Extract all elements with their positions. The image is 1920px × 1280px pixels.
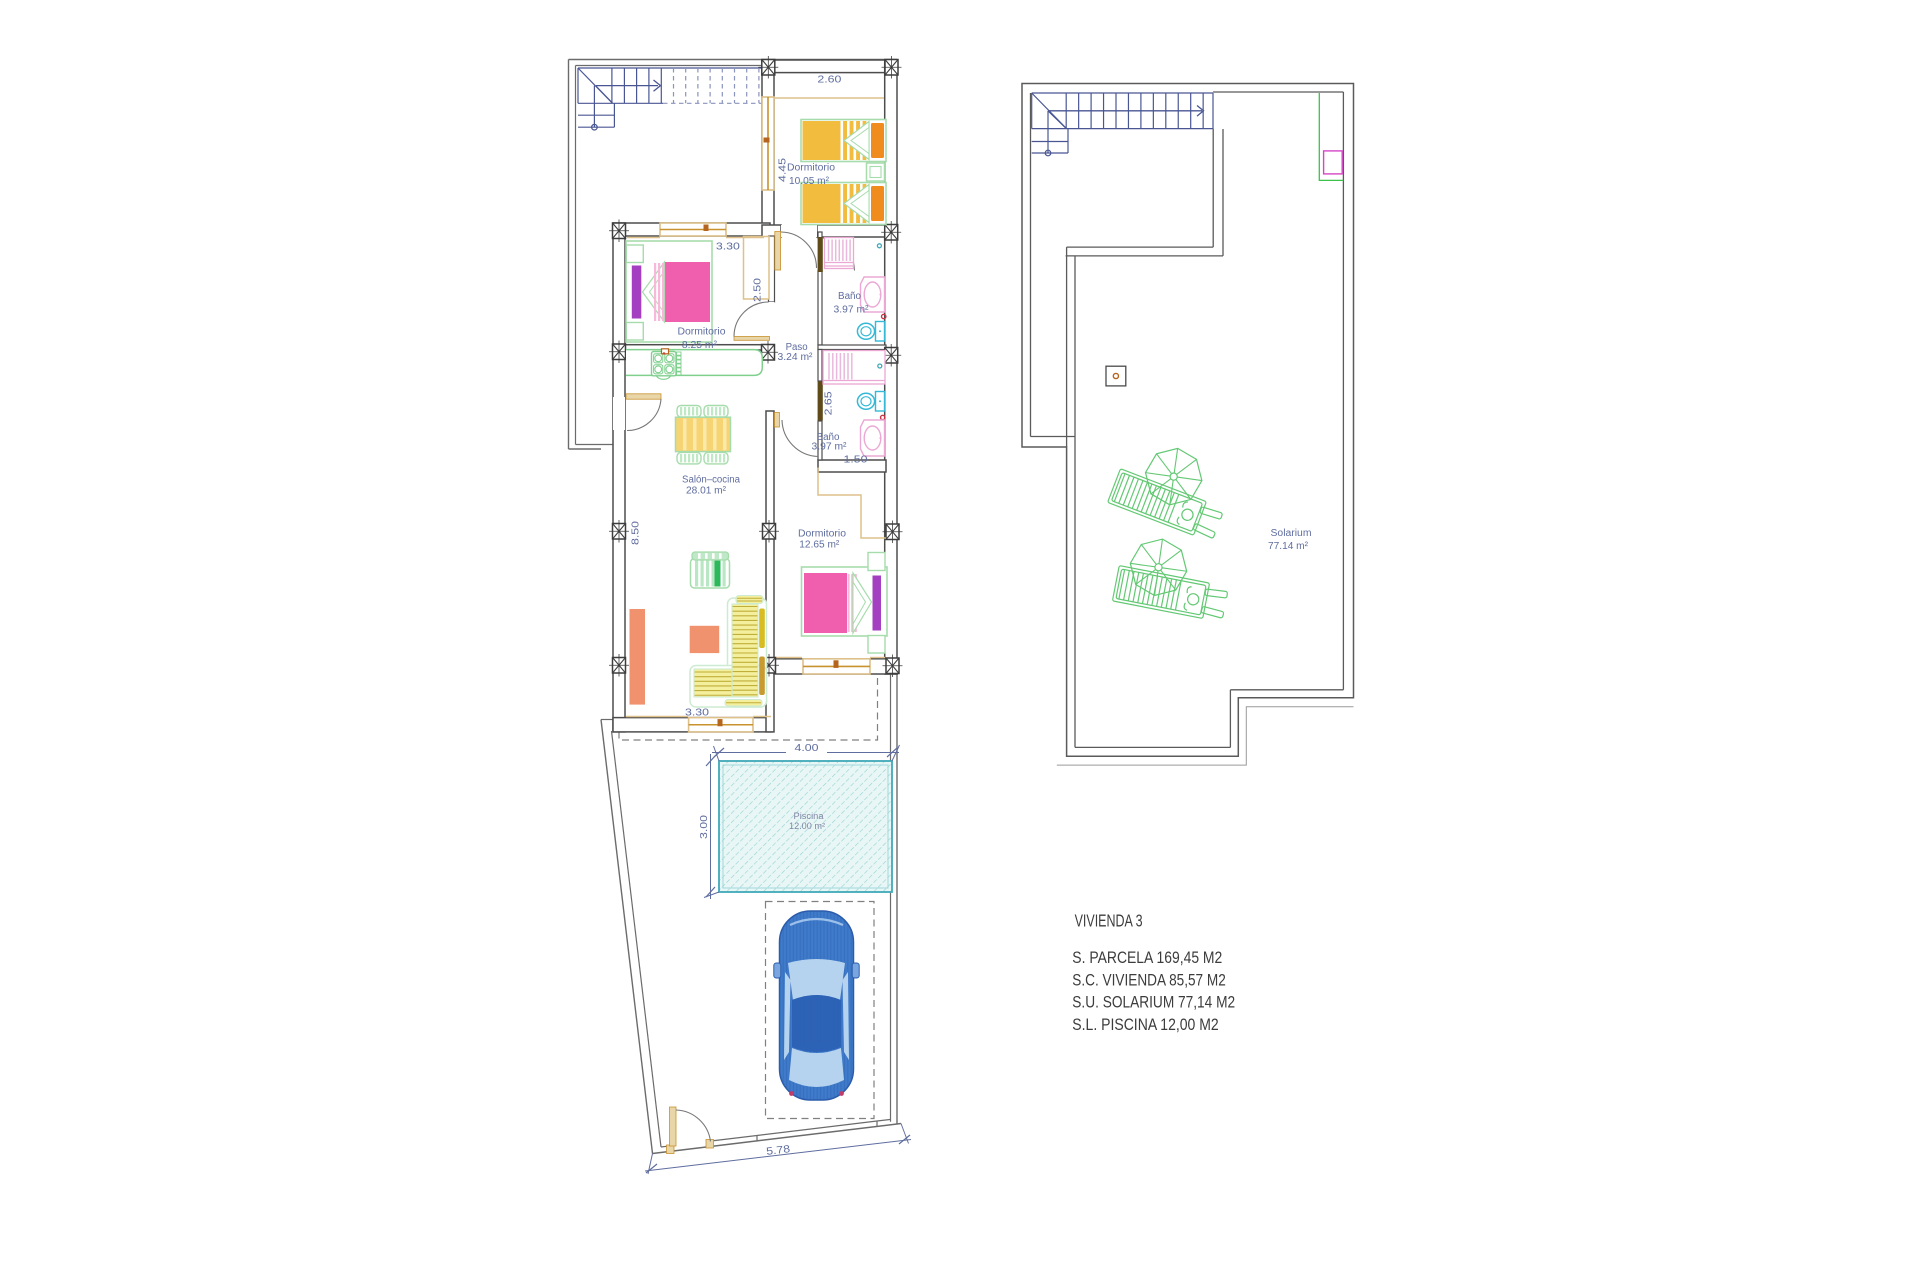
- svg-text:77.14 m²: 77.14 m²: [1268, 541, 1309, 552]
- svg-text:8.25 m²: 8.25 m²: [682, 340, 718, 351]
- svg-text:Salón–cocina: Salón–cocina: [682, 475, 740, 486]
- svg-text:1.50: 1.50: [844, 453, 868, 465]
- svg-text:S.L. PISCINA 12,00 M2: S.L. PISCINA 12,00 M2: [1072, 1015, 1218, 1034]
- svg-text:3.00: 3.00: [698, 815, 710, 839]
- svg-text:2.50: 2.50: [752, 278, 764, 302]
- svg-text:8.50: 8.50: [630, 521, 642, 545]
- svg-text:Solarium: Solarium: [1271, 528, 1312, 539]
- svg-text:3.97 m²: 3.97 m²: [834, 305, 870, 316]
- svg-text:3.24 m²: 3.24 m²: [778, 352, 814, 363]
- svg-text:S.U. SOLARIUM 77,14 M2: S.U. SOLARIUM 77,14 M2: [1072, 993, 1235, 1012]
- svg-text:Dormitorio: Dormitorio: [678, 327, 726, 338]
- svg-text:4.00: 4.00: [795, 742, 819, 754]
- svg-text:S.C. VIVIENDA 85,57 M2: S.C. VIVIENDA 85,57 M2: [1072, 970, 1226, 989]
- svg-text:Dormitorio: Dormitorio: [798, 529, 846, 540]
- svg-text:Piscina: Piscina: [794, 811, 824, 821]
- svg-text:28.01 m²: 28.01 m²: [686, 486, 727, 497]
- svg-text:S. PARCELA 169,45 M2: S. PARCELA 169,45 M2: [1072, 948, 1222, 967]
- svg-text:3.30: 3.30: [716, 241, 740, 253]
- svg-text:Baño: Baño: [838, 291, 861, 302]
- svg-text:Dormitorio: Dormitorio: [787, 163, 835, 174]
- svg-text:10.05 m²: 10.05 m²: [789, 176, 830, 187]
- svg-text:VIVIENDA 3: VIVIENDA 3: [1075, 911, 1143, 931]
- svg-text:3.30: 3.30: [685, 707, 709, 719]
- svg-text:12.65 m²: 12.65 m²: [799, 539, 840, 550]
- svg-text:3.97 m²: 3.97 m²: [812, 442, 848, 453]
- svg-text:2.60: 2.60: [817, 74, 841, 86]
- svg-text:2.65: 2.65: [822, 391, 834, 415]
- svg-text:12.00 m²: 12.00 m²: [789, 821, 825, 831]
- svg-text:4.45: 4.45: [777, 158, 789, 182]
